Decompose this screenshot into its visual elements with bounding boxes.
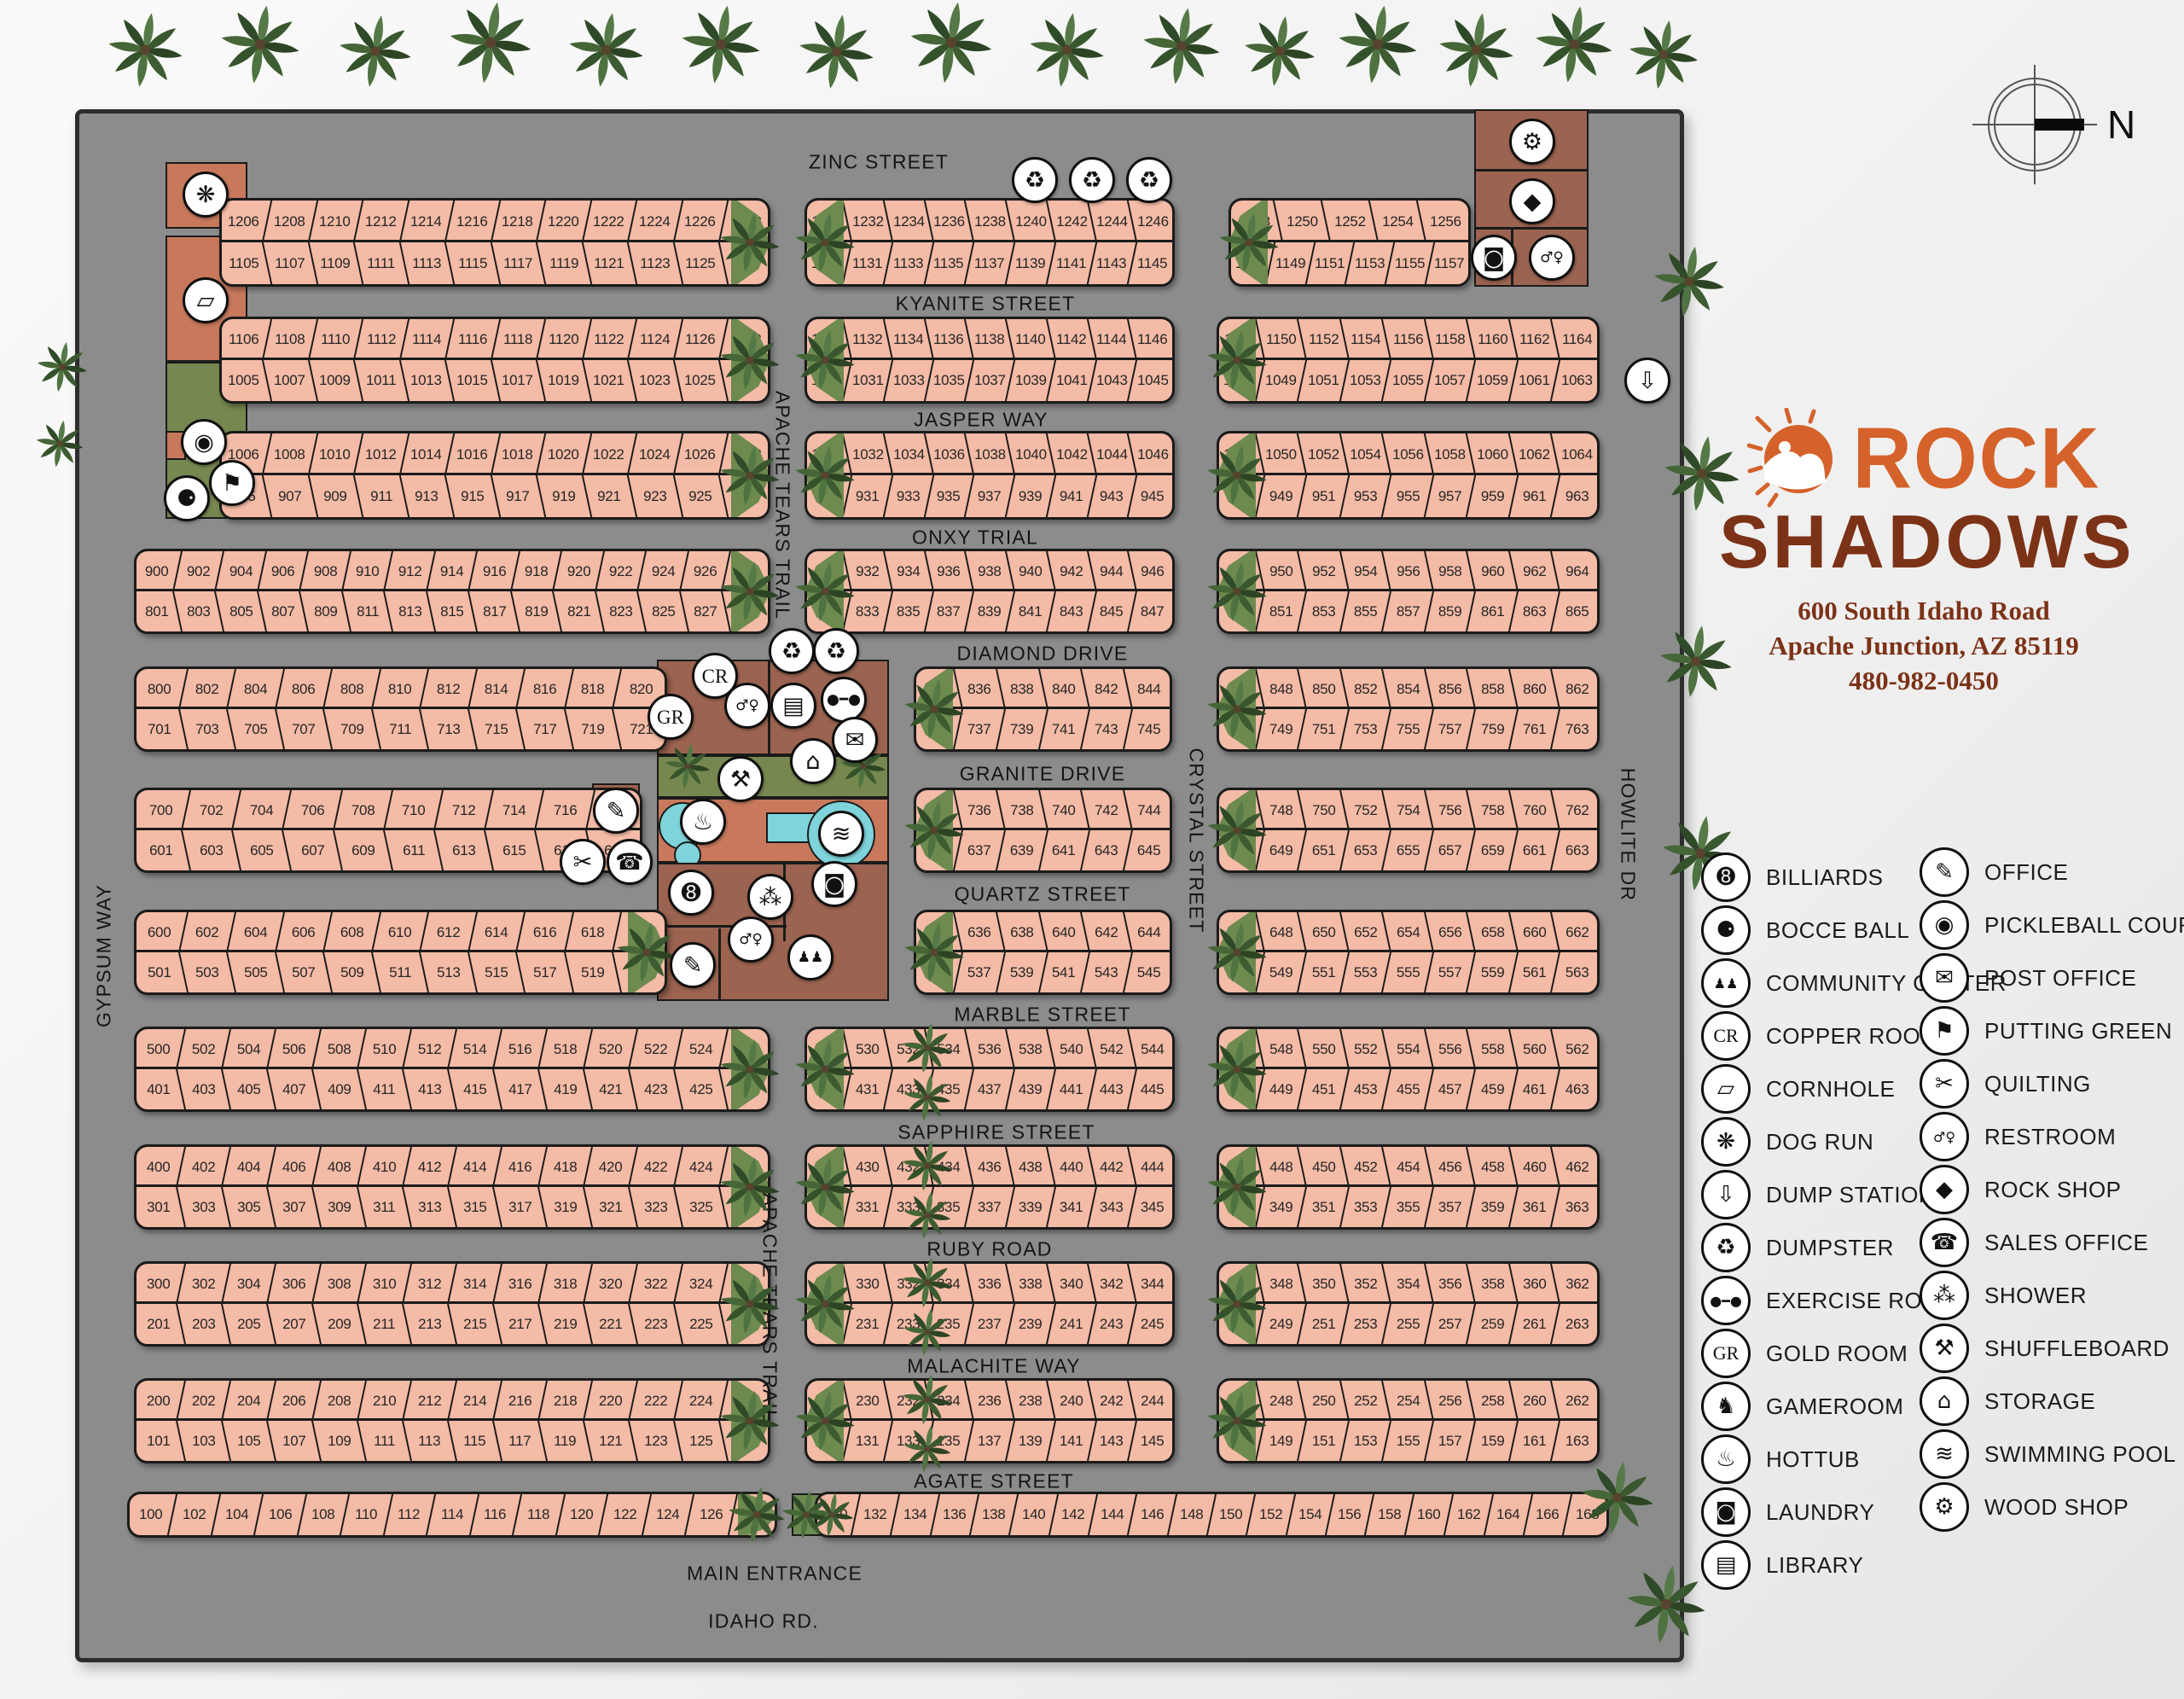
lot-number: 309 [328,1199,351,1216]
lot-number: 518 [554,1041,577,1058]
lot-number: 1160 [1478,331,1507,348]
lot-number: 839 [978,603,1001,620]
lot-number: 714 [502,802,526,819]
lot-row: 346348350352354356358360362 [1217,1264,1600,1304]
post-office-icon: ✉ [1920,953,1969,1003]
lot-number: 615 [502,842,526,859]
lot-number: 916 [483,563,506,580]
lot-number: 1140 [1015,331,1045,348]
lot-row: 831833835837839841843845847 [804,589,1175,631]
lot-number: 154 [1299,1506,1322,1523]
laundry-icon: ◙ [1471,235,1517,281]
legend-item-library: ▤LIBRARY [1701,1545,2007,1586]
lot-number: 1040 [1014,446,1046,463]
lot-number: 1007 [274,372,305,389]
lot-number: 325 [689,1199,712,1216]
lot-number: 1019 [548,372,579,389]
lot-715: 715 [469,709,526,749]
lot-number: 1152 [1309,331,1339,348]
lot-number: 757 [1438,721,1461,738]
lot-number: 141 [1060,1433,1083,1450]
lot-number: 532 [897,1041,920,1058]
lot-number: 1131 [852,255,882,272]
lot-444: 444 [1129,1147,1175,1187]
lot-number: 1056 [1392,446,1424,463]
laundry-icon: ◙ [811,861,857,907]
lot-number: 842 [1095,681,1118,698]
hottub-icon: ♨ [680,799,726,845]
lot-1226: 1226 [674,201,729,242]
lot-number: 861 [1481,603,1504,620]
lot-363: 363 [1553,1187,1600,1227]
lot-number: 231 [856,1316,879,1333]
lot-number: 1139 [1015,255,1045,272]
lot-number: 1216 [456,213,488,230]
lot-number: 817 [483,603,506,620]
lot-number: 643 [1095,842,1118,859]
lot-number: 242 [1101,1393,1124,1410]
lot-number: 417 [508,1081,531,1098]
lot-605: 605 [233,830,292,870]
lot-number: 825 [652,603,675,620]
lot-number: 240 [1060,1393,1083,1410]
lot-1118: 1118 [491,319,546,360]
lot-number: 109 [328,1433,351,1450]
lot-number: 402 [192,1159,215,1176]
lot-number: 763 [1565,721,1588,738]
storage-icon: ⌂ [1920,1376,1969,1426]
lot-number: 457 [1438,1081,1461,1098]
lot-number: 756 [1438,802,1461,819]
shower-icon: ⁂ [747,874,793,920]
lot-block-sapphire-left: 4004024044064084104124144164184204224244… [134,1144,770,1230]
lot-number: 862 [1565,681,1588,698]
lot-row: 3013033053073093113133153173193213233253… [134,1184,770,1227]
lot-number: 211 [373,1316,395,1333]
lot-number: 852 [1354,681,1377,698]
lot-number: 1115 [457,255,486,272]
lot-block-onyx-mid: 9309329349369389409429449468318338358378… [804,549,1175,634]
lot-number: 104 [225,1506,248,1523]
lot-number: 449 [1269,1081,1292,1098]
legend-label: RESTROOM [1984,1124,2116,1150]
lot-number: 1141 [1056,255,1086,272]
legend-label: SWIMMING POOL [1984,1441,2176,1468]
lot-block-agate-right: 1301321341361381401421441461481501521541… [815,1492,1609,1538]
lot-number: 655 [1397,842,1420,859]
lot-number: 156 [1339,1506,1362,1523]
lot-block-diamond-right: 8468488508528548568588608627477497517537… [1217,666,1600,752]
lot-number: 600 [148,924,171,941]
lot-262: 262 [1553,1381,1600,1421]
lot-number: 1143 [1097,255,1127,272]
lot-number: 637 [967,842,990,859]
palm-tree-icon [796,11,877,96]
lot-number: 740 [1053,802,1076,819]
lot-number: 611 [403,842,425,859]
lot-number: 443 [1101,1081,1124,1098]
lot-number: 809 [314,603,337,620]
lot-row: 229231233235237239241243245 [804,1301,1175,1344]
lot-number: 401 [147,1081,170,1098]
lot-number: 407 [282,1081,305,1098]
lot-number: 1035 [933,372,965,389]
lot-number: 1043 [1096,372,1128,389]
lot-block-marble-right: 5465485505525545565585605624474494514534… [1217,1027,1600,1112]
lot-number: 1064 [1561,446,1593,463]
lot-number: 218 [554,1393,577,1410]
lot-862: 862 [1553,669,1600,709]
lot-number: 117 [508,1433,531,1450]
lot-number: 237 [978,1316,1001,1333]
lot-703: 703 [180,709,236,749]
lot-row: 1006100810101012101410161018102010221024… [219,433,770,475]
legend-label: STORAGE [1984,1388,2095,1415]
lot-number: 848 [1269,681,1292,698]
lot-number: 1222 [593,213,624,230]
legend-label: ROCK SHOP [1984,1177,2122,1203]
lot-number: 323 [644,1199,667,1216]
lot-number: 414 [463,1159,486,1176]
lot-row: 104710491051105310551057105910611063 [1217,358,1600,401]
street-label-jasper-way: JASPER WAY [914,409,1048,432]
lot-number: 840 [1053,681,1076,698]
lot-number: 408 [328,1159,351,1176]
lot-number: 808 [340,681,363,698]
street-label-quartz-street: QUARTZ STREET [955,883,1131,906]
lot-number: 1220 [548,213,579,230]
lot-number: 538 [1019,1041,1042,1058]
lot-704: 704 [233,790,292,830]
lot-number: 112 [398,1506,420,1523]
lot-number: 307 [282,1199,305,1216]
lot-number: 513 [437,964,460,981]
lot-number: 1132 [852,331,882,348]
lot-number: 463 [1565,1081,1588,1098]
legend-label: PUTTING GREEN [1984,1018,2172,1044]
lot-number: 224 [689,1393,712,1410]
lot-number: 208 [328,1393,351,1410]
lot-number: 343 [1101,1199,1124,1216]
lot-number: 442 [1101,1159,1124,1176]
lot-row: 329331333335337339341343345 [804,1184,1175,1227]
lot-number: 606 [293,924,316,941]
palm-tree-icon [1241,13,1318,94]
lot-number: 1232 [851,213,883,230]
lot-number: 558 [1481,1041,1504,1058]
lot-number: 253 [1354,1316,1377,1333]
street-label-ruby-road: RUBY ROAD [926,1238,1052,1261]
lot-number: 123 [644,1433,667,1450]
lot-number: 512 [418,1041,441,1058]
street-label-granite-drive: GRANITE DRIVE [960,763,1126,786]
lot-row: 246248250252254256258260262 [1217,1381,1600,1421]
shuffleboard-icon: ⚒ [1920,1324,1969,1373]
lot-number: 827 [694,603,717,620]
park-address: 600 South Idaho Road Apache Junction, AZ… [1719,594,2129,699]
lot-number: 638 [1010,924,1033,941]
lot-number: 1009 [319,372,351,389]
lot-number: 644 [1137,924,1160,941]
copper-room-icon: CR [1701,1011,1751,1061]
lot-number: 1044 [1096,446,1128,463]
lot-number: 1242 [1055,213,1087,230]
lot-number: 938 [978,563,1001,580]
lot-number: 506 [282,1041,305,1058]
lot-number: 1252 [1334,213,1366,230]
lot-number: 1110 [321,331,350,348]
lot-number: 908 [314,563,337,580]
lot-number: 945 [1141,488,1164,505]
lot-number: 524 [689,1041,712,1058]
lot-number: 311 [373,1199,395,1216]
legend-label: SALES OFFICE [1984,1230,2148,1256]
lot-number: 913 [415,488,438,505]
northeast-wall [1474,169,1589,172]
lot-number: 662 [1565,924,1588,941]
lot-number: 1256 [1430,213,1461,230]
lot-245: 245 [1129,1304,1175,1344]
lot-963: 963 [1552,475,1600,517]
lot-number: 910 [356,563,379,580]
lot-number: 760 [1523,802,1546,819]
lot-745: 745 [1124,709,1172,749]
lot-number: 125 [689,1433,712,1450]
lot-number: 853 [1312,603,1335,620]
palm-tree-icon [1626,17,1701,96]
lot-number: 261 [1523,1316,1546,1333]
lot-number: 860 [1523,681,1546,698]
hottub-icon: ♨ [1701,1434,1751,1484]
street-label-crystal-street: CRYSTAL STREET [1185,748,1208,933]
lot-block-onyx-right: 9489509529549569589609629648498518538558… [1217,549,1600,634]
lot-number: 204 [237,1393,260,1410]
lot-number: 1240 [1014,213,1046,230]
lot-number: 317 [508,1199,531,1216]
lot-row: 102910311033103510371039104110431045 [804,358,1175,401]
lot-number: 959 [1481,488,1504,505]
lot-number: 737 [967,721,990,738]
lot-number: 135 [938,1433,961,1450]
lot-number: 462 [1565,1159,1588,1176]
park-logo: ROCK SHADOWS 600 South Idaho Road Apache… [1719,408,2129,699]
lot-number: 438 [1019,1159,1042,1176]
lot-number: 1250 [1287,213,1318,230]
palm-tree-icon [1335,2,1420,91]
lot-545: 545 [1124,952,1172,992]
lot-block-agate-left: 1001021041061081101121141161181201221241… [127,1492,777,1538]
lot-number: 552 [1354,1041,1377,1058]
lot-1254: 1254 [1370,201,1426,242]
lot-number: 843 [1060,603,1083,620]
lot-number: 118 [527,1506,549,1523]
lot-number: 152 [1259,1506,1282,1523]
lot-921: 921 [583,475,637,517]
lot-number: 203 [192,1316,215,1333]
lot-number: 960 [1481,563,1504,580]
lot-1164: 1164 [1552,319,1600,360]
lot-number: 210 [373,1393,396,1410]
lot-row: 546548550552554556558560562 [1217,1029,1600,1069]
legend-label: POST OFFICE [1984,965,2136,992]
lot-number: 1120 [549,331,578,348]
lot-number: 542 [1101,1041,1124,1058]
lot-714: 714 [485,790,544,830]
lot-row: 929931933935937939941943945 [804,473,1175,517]
lot-1017: 1017 [491,360,546,401]
lot-244: 244 [1129,1381,1175,1421]
lot-663: 663 [1553,830,1600,870]
lot-number: 448 [1269,1159,1292,1176]
lot-462: 462 [1553,1147,1600,1187]
lot-number: 1111 [367,255,395,272]
lot-945: 945 [1129,475,1175,517]
lot-number: 736 [967,802,990,819]
lot-number: 1031 [851,372,883,389]
lot-number: 522 [644,1041,667,1058]
lot-1046: 1046 [1129,433,1175,475]
lot-number: 639 [1010,842,1033,859]
lot-number: 906 [271,563,294,580]
lot-1063: 1063 [1552,360,1600,401]
lot-block-granite-right: 7467487507527547567587607626476496516536… [1217,788,1600,873]
lot-number: 215 [463,1316,486,1333]
lot-511: 511 [373,952,429,992]
lot-number: 161 [1523,1433,1546,1450]
lot-number: 702 [200,802,223,819]
lot-1218: 1218 [491,201,546,242]
lot-number: 461 [1523,1081,1546,1098]
lot-number: 458 [1481,1159,1504,1176]
lot-number: 300 [147,1276,170,1293]
lot-number: 648 [1269,924,1292,941]
lot-number: 440 [1060,1159,1083,1176]
lot-number: 412 [418,1159,441,1176]
street-label-sapphire-street: SAPPHIRE STREET [897,1121,1095,1144]
lot-number: 149 [1269,1433,1292,1450]
lot-number: 1224 [639,213,671,230]
lot-number: 717 [533,721,556,738]
legend-item-shower: ⁂SHOWER [1920,1275,2184,1316]
legend-item-sales-office: ☎SALES OFFICE [1920,1222,2184,1263]
lot-block-ruby-left: 3003023043063083103123143163183203223243… [134,1261,770,1347]
lot-number: 341 [1060,1199,1083,1216]
lot-707: 707 [276,709,333,749]
lot-number: 614 [485,924,508,941]
lot-number: 1057 [1435,372,1467,389]
lot-block-kyanite-left: 1106110811101112111411161118112011221124… [219,317,770,404]
lot-number: 413 [418,1081,441,1098]
lot-row: 747749751753755757759761763 [1217,707,1600,749]
lot-number: 453 [1354,1081,1377,1098]
lot-block-malachite-left: 2002022042062082102122142162182202222242… [134,1378,770,1463]
lot-number: 1158 [1435,331,1465,348]
lot-row: 114811501152115411561158116011621164 [1217,319,1600,360]
lot-number: 744 [1137,802,1160,819]
lot-number: 562 [1565,1041,1588,1058]
lot-number: 1105 [229,255,258,272]
lot-number: 145 [1141,1433,1164,1450]
lot-number: 1133 [893,255,923,272]
lot-number: 445 [1141,1081,1164,1098]
lot-number: 806 [293,681,316,698]
lot-number: 113 [418,1433,440,1450]
lot-number: 1054 [1350,446,1382,463]
lot-number: 955 [1397,488,1420,505]
lot-number: 752 [1354,802,1377,819]
lot-507: 507 [276,952,333,992]
palm-tree-icon [218,2,303,91]
address-line-1: 600 South Idaho Road [1719,594,2129,629]
lot-number: 517 [533,964,556,981]
lot-block-granite-mid: 734736738740742744635637639641643645 [914,788,1172,873]
lot-number: 1023 [639,372,671,389]
lot-number: 507 [293,964,316,981]
lot-number: 1025 [684,372,716,389]
lot-number: 131 [856,1433,879,1450]
quilting-icon: ✂ [560,839,606,885]
lot-number: 509 [340,964,363,981]
lot-number: 745 [1137,721,1160,738]
lot-number: 1210 [319,213,351,230]
lot-number: 151 [1312,1433,1335,1450]
lot-number: 230 [856,1393,879,1410]
compass-rose: N [1962,58,2158,195]
lot-number: 451 [1312,1081,1335,1098]
lot-number: 608 [340,924,363,941]
lot-number: 858 [1481,681,1504,698]
lot-number: 214 [463,1393,486,1410]
palm-tree-icon [105,9,186,95]
gold-room-icon: GR [648,694,694,740]
lot-number: 560 [1523,1041,1546,1058]
rock-shop-icon: ◆ [1509,178,1555,224]
palm-tree-icon [336,12,415,95]
lot-number: 937 [978,488,1001,505]
lot-number: 753 [1354,721,1377,738]
street-label-malachite-way: MALACHITE WAY [907,1355,1080,1378]
lot-number: 536 [978,1041,1001,1058]
lot-number: 335 [938,1199,961,1216]
lot-number: 865 [1565,603,1588,620]
lot-1013: 1013 [400,360,455,401]
lot-number: 609 [351,842,375,859]
lot-number: 404 [237,1159,260,1176]
lot-number: 245 [1141,1316,1164,1333]
lot-number: 925 [688,488,712,505]
lot-number: 1234 [892,213,924,230]
lot-number: 946 [1141,563,1164,580]
lot-number: 164 [1496,1506,1519,1523]
lot-808: 808 [325,669,381,709]
lot-number: 1244 [1096,213,1128,230]
lot-number: 344 [1141,1276,1164,1293]
lot-number: 642 [1095,924,1118,941]
lot-362: 362 [1553,1264,1600,1304]
lot-number: 345 [1141,1199,1164,1216]
lot-number: 1134 [893,331,923,348]
lot-row: 446448450452454456458460462 [1217,1147,1600,1187]
lot-number: 918 [525,563,548,580]
lot-number: 919 [552,488,575,505]
south-wall [718,928,721,1001]
lot-number: 651 [1312,842,1335,859]
lot-515: 515 [469,952,526,992]
pickleball-court-icon: ◉ [1920,900,1969,950]
lot-row: 746748750752754756758760762 [1217,790,1600,830]
lot-number: 1164 [1562,331,1592,348]
billiards-icon: ➑ [668,870,714,916]
